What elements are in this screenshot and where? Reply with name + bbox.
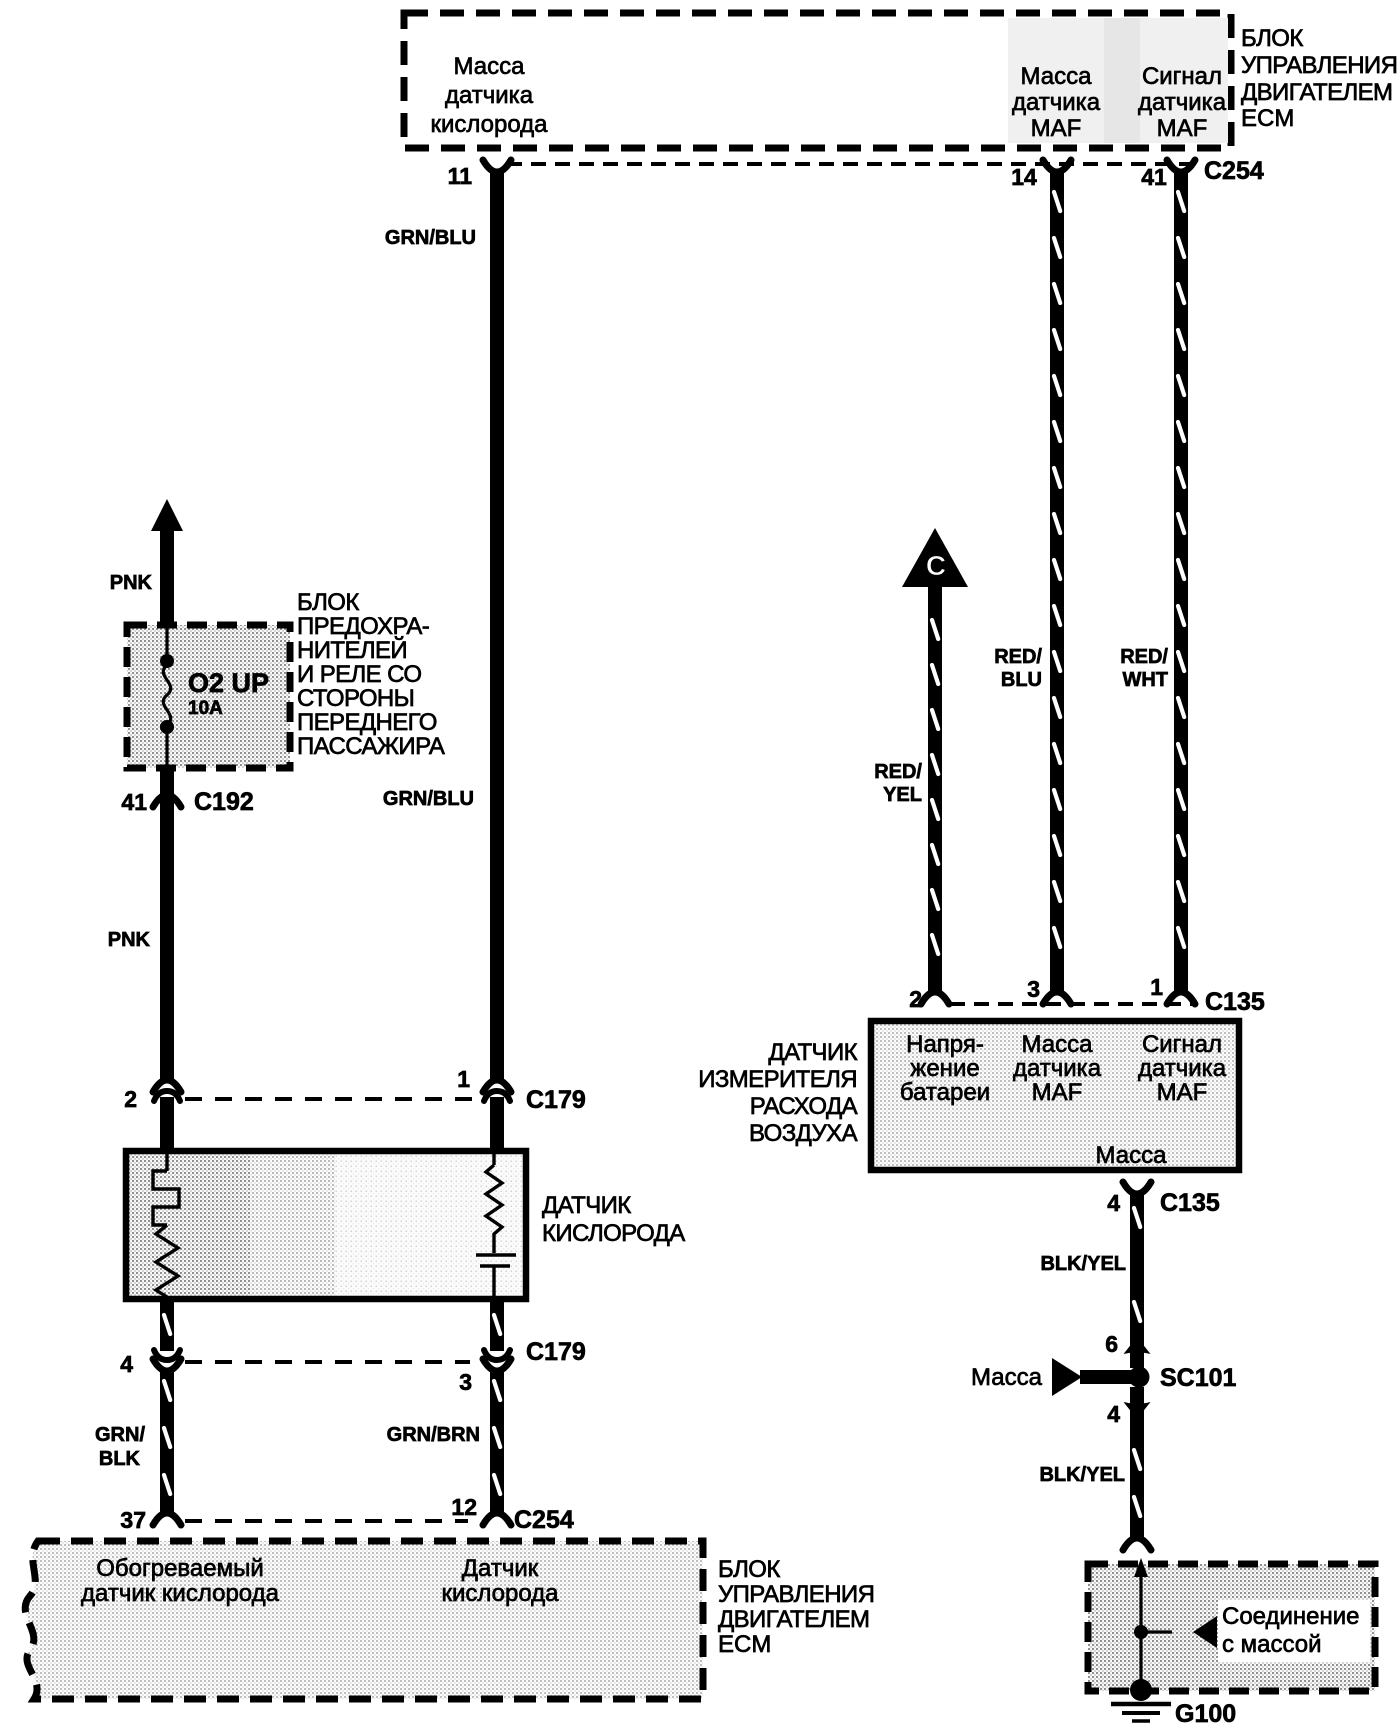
svg-text:YEL: YEL (883, 784, 922, 806)
svg-text:SC101: SC101 (1160, 1364, 1237, 1392)
svg-text:ПЕРЕДНЕГО: ПЕРЕДНЕГО (297, 709, 437, 736)
svg-text:PNK: PNK (108, 929, 151, 951)
svg-text:ДВИГАТЕЛЕМ: ДВИГАТЕЛЕМ (718, 1606, 869, 1633)
svg-text:C135: C135 (1205, 988, 1265, 1016)
svg-text:датчика: датчика (445, 82, 534, 109)
svg-text:ДВИГАТЕЛЕМ: ДВИГАТЕЛЕМ (1241, 79, 1392, 106)
svg-text:BLU: BLU (1001, 669, 1042, 691)
svg-text:с массой: с массой (1222, 1631, 1322, 1658)
svg-text:37: 37 (120, 1507, 146, 1533)
svg-text:ПРЕДОХРА-: ПРЕДОХРА- (297, 613, 429, 640)
svg-text:2: 2 (124, 1086, 137, 1112)
svg-text:БЛОК: БЛОК (718, 1556, 780, 1583)
svg-text:НИТЕЛЕЙ: НИТЕЛЕЙ (297, 636, 407, 664)
svg-text:C135: C135 (1160, 1189, 1220, 1217)
svg-text:Масса: Масса (971, 1364, 1043, 1391)
svg-text:O2 UP: O2 UP (188, 668, 269, 698)
svg-text:ДАТЧИК: ДАТЧИК (768, 1039, 857, 1066)
svg-text:11: 11 (448, 163, 473, 189)
svg-text:датчика: датчика (1138, 89, 1227, 116)
svg-text:6: 6 (1105, 1331, 1118, 1357)
svg-text:Обогреваемый: Обогреваемый (96, 1555, 264, 1582)
svg-text:MAF: MAF (1157, 1079, 1208, 1106)
svg-text:GRN/BLU: GRN/BLU (383, 788, 474, 810)
svg-text:БЛОК: БЛОК (297, 589, 359, 616)
svg-text:BLK/YEL: BLK/YEL (1040, 1253, 1126, 1275)
svg-text:Масса: Масса (1096, 1142, 1168, 1169)
svg-text:ВОЗДУХА: ВОЗДУХА (749, 1120, 858, 1147)
svg-text:ДАТЧИК: ДАТЧИК (542, 1192, 631, 1219)
svg-text:УПРАВЛЕНИЯ: УПРАВЛЕНИЯ (1241, 52, 1397, 79)
svg-text:2: 2 (909, 986, 922, 1012)
svg-text:датчика: датчика (1013, 1055, 1102, 1082)
svg-text:41: 41 (121, 789, 147, 815)
svg-text:RED/: RED/ (994, 646, 1042, 668)
svg-text:РАСХОДА: РАСХОДА (750, 1093, 858, 1120)
svg-text:1: 1 (457, 1066, 470, 1092)
svg-text:Масса: Масса (1021, 63, 1093, 90)
svg-text:G100: G100 (1175, 1700, 1236, 1728)
svg-text:Датчик: Датчик (462, 1555, 539, 1582)
svg-text:1: 1 (1150, 974, 1163, 1000)
svg-text:WHT: WHT (1122, 669, 1168, 691)
svg-text:И РЕЛЕ СО: И РЕЛЕ СО (297, 661, 421, 688)
svg-text:датчик кислорода: датчик кислорода (81, 1580, 280, 1607)
svg-text:кислорода: кислорода (441, 1580, 559, 1607)
svg-text:батареи: батареи (900, 1079, 990, 1106)
svg-text:12: 12 (451, 1494, 477, 1520)
svg-text:Сигнал: Сигнал (1142, 63, 1222, 90)
svg-text:датчика: датчика (1138, 1055, 1227, 1082)
svg-text:кислорода: кислорода (430, 111, 548, 138)
svg-text:RED/: RED/ (874, 761, 922, 783)
svg-text:10A: 10A (188, 698, 223, 719)
svg-text:ECM: ECM (1241, 105, 1294, 132)
svg-text:4: 4 (1107, 1401, 1120, 1427)
svg-text:BLK/YEL: BLK/YEL (1039, 1464, 1125, 1486)
svg-text:GRN/BLU: GRN/BLU (385, 227, 476, 249)
svg-text:СТОРОНЫ: СТОРОНЫ (297, 685, 414, 712)
svg-text:BLK: BLK (99, 1448, 141, 1470)
svg-text:MAF: MAF (1032, 1079, 1083, 1106)
svg-text:C254: C254 (1204, 157, 1264, 185)
svg-text:4: 4 (120, 1351, 133, 1377)
svg-text:MAF: MAF (1031, 115, 1082, 142)
svg-text:Масса: Масса (454, 53, 526, 80)
svg-text:УПРАВЛЕНИЯ: УПРАВЛЕНИЯ (718, 1581, 874, 1608)
svg-text:Сигнал: Сигнал (1142, 1031, 1222, 1058)
svg-text:4: 4 (1107, 1190, 1120, 1216)
svg-text:ECM: ECM (718, 1631, 771, 1658)
svg-text:GRN/BRN: GRN/BRN (387, 1424, 480, 1446)
svg-text:41: 41 (1141, 164, 1167, 190)
svg-text:Напря-: Напря- (906, 1031, 984, 1058)
svg-text:жение: жение (910, 1055, 979, 1082)
svg-text:ПАССАЖИРА: ПАССАЖИРА (297, 733, 445, 760)
svg-text:КИСЛОРОДА: КИСЛОРОДА (542, 1220, 685, 1247)
svg-text:3: 3 (459, 1369, 472, 1395)
svg-text:C179: C179 (526, 1086, 586, 1114)
svg-text:RED/: RED/ (1120, 646, 1168, 668)
svg-text:Соединение: Соединение (1222, 1603, 1360, 1630)
svg-text:Масса: Масса (1022, 1031, 1094, 1058)
svg-text:ИЗМЕРИТЕЛЯ: ИЗМЕРИТЕЛЯ (698, 1066, 857, 1093)
svg-text:БЛОК: БЛОК (1241, 25, 1303, 52)
svg-text:C: C (926, 550, 946, 581)
svg-text:датчика: датчика (1012, 89, 1101, 116)
svg-text:GRN/: GRN/ (95, 1424, 145, 1446)
svg-text:C254: C254 (514, 1506, 574, 1534)
svg-text:3: 3 (1027, 976, 1040, 1002)
svg-text:14: 14 (1011, 164, 1037, 190)
svg-text:PNK: PNK (110, 572, 153, 594)
svg-text:MAF: MAF (1157, 115, 1208, 142)
svg-text:C192: C192 (194, 788, 254, 816)
svg-text:C179: C179 (526, 1338, 586, 1366)
